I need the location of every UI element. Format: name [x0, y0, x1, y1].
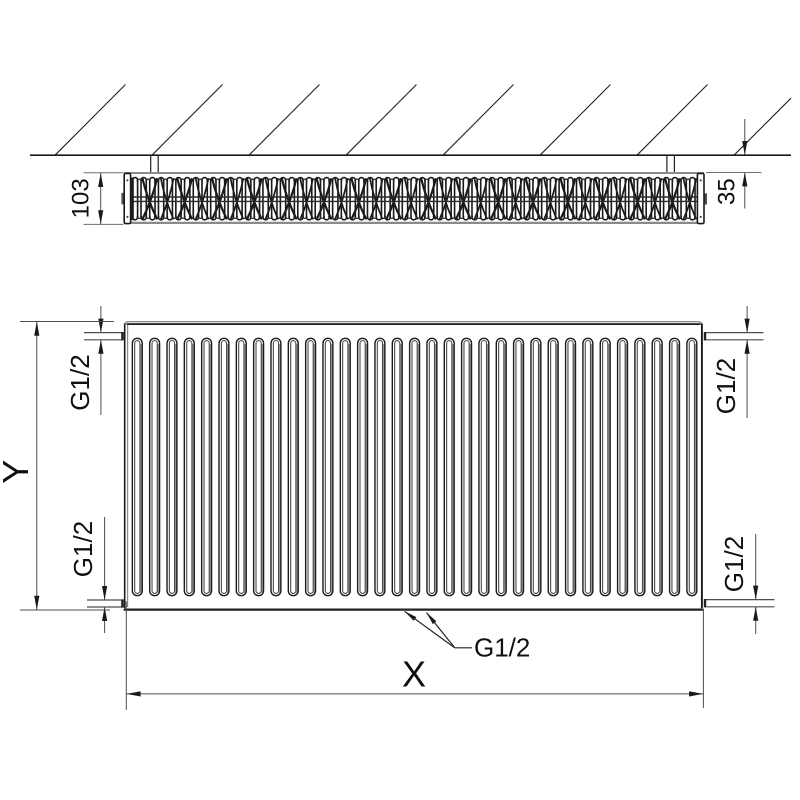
svg-text:103: 103	[68, 178, 95, 218]
svg-text:G1/2: G1/2	[719, 536, 749, 592]
svg-text:35: 35	[714, 178, 741, 205]
svg-text:G1/2: G1/2	[68, 521, 98, 577]
svg-text:G1/2: G1/2	[474, 633, 530, 663]
svg-text:G1/2: G1/2	[65, 354, 95, 410]
svg-text:G1/2: G1/2	[711, 358, 741, 414]
svg-text:Y: Y	[0, 460, 36, 484]
svg-text:X: X	[402, 654, 426, 695]
